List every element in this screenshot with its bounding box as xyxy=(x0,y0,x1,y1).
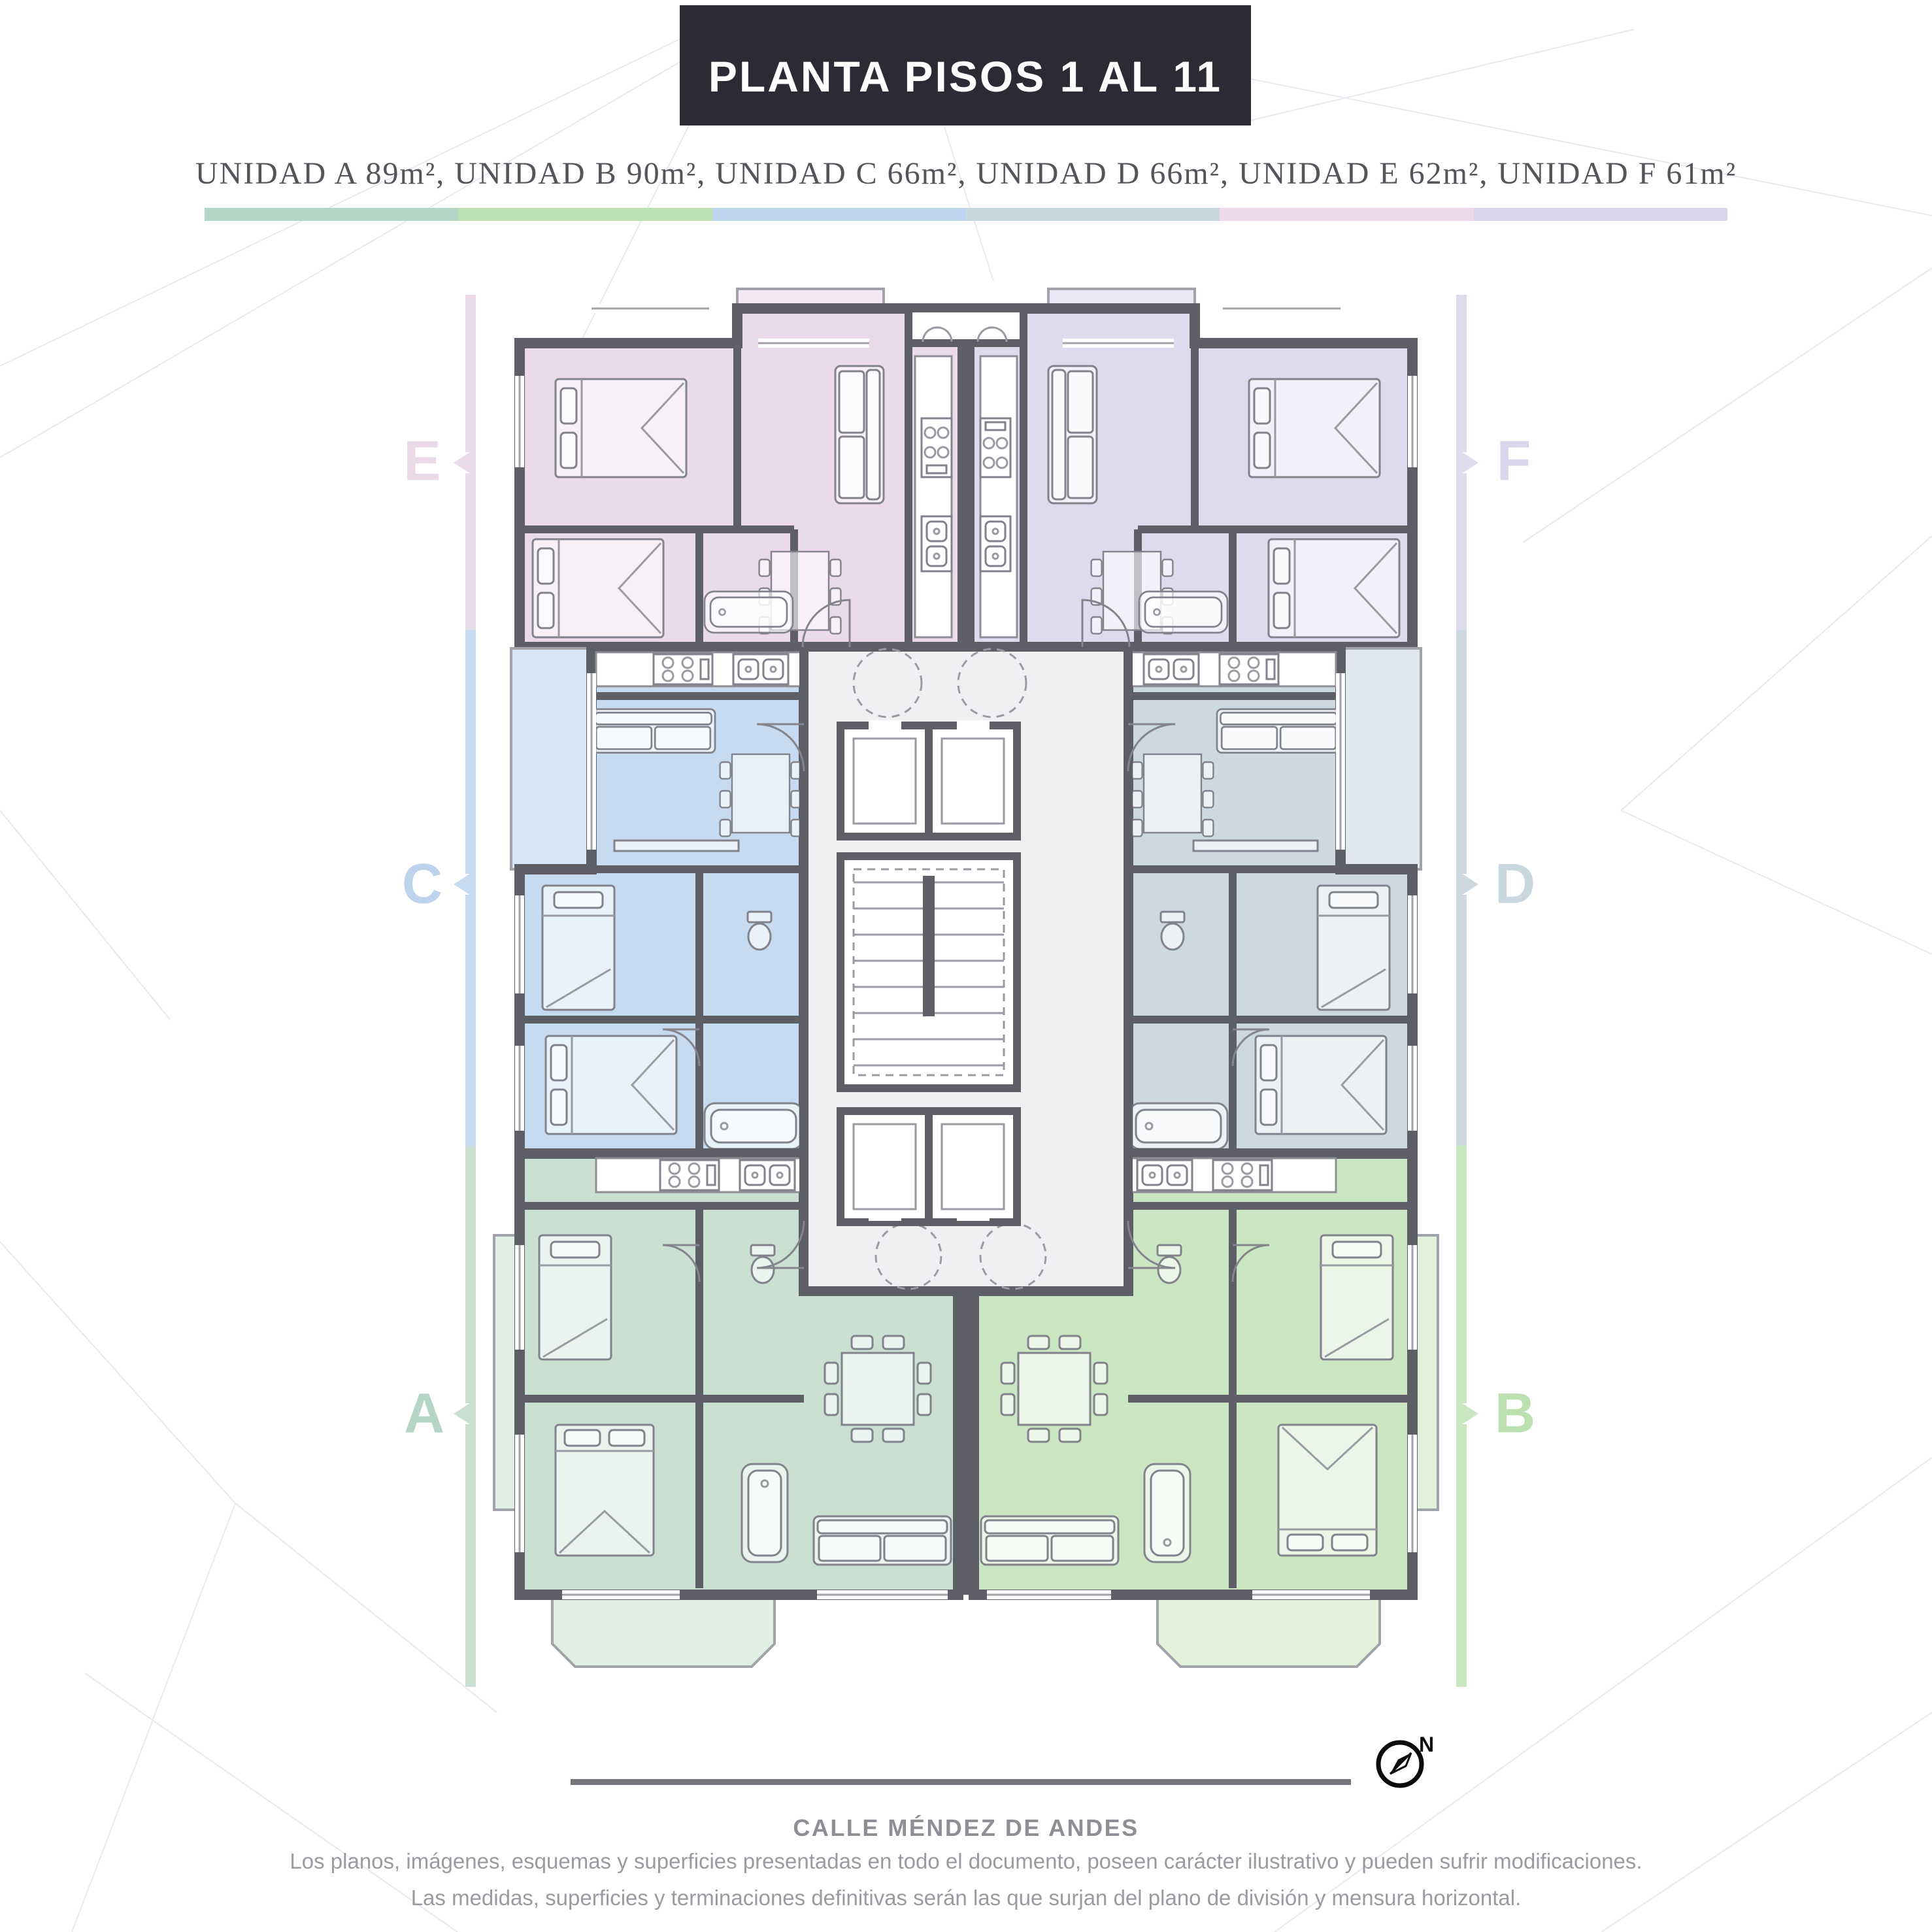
street-line xyxy=(571,1779,1351,1785)
party-wall xyxy=(958,1291,974,1595)
elevators-lower xyxy=(841,1111,1017,1222)
floor-plan-canvas: N xyxy=(0,0,1932,1932)
title-block: PLANTA PISOS 1 AL 11 xyxy=(680,5,1251,125)
unit-label-e: E xyxy=(403,429,441,494)
vent-shaft xyxy=(908,308,1024,343)
unit-label-d: D xyxy=(1495,852,1535,917)
legend-segment-c xyxy=(712,208,966,221)
legend-segment-d xyxy=(966,208,1220,221)
floor-plan xyxy=(494,289,1438,1667)
right-rail xyxy=(1452,295,1478,1687)
unit-e-region xyxy=(520,289,963,647)
units-subtitle: UNIDAD A 89m², UNIDAD B 90m², UNIDAD C 6… xyxy=(149,156,1783,192)
disclaimer: Los planos, imágenes, esquemas y superfi… xyxy=(182,1843,1750,1916)
unit-label-f: F xyxy=(1497,429,1531,494)
unit-f-region xyxy=(969,289,1412,647)
disclaimer-line-1: Los planos, imágenes, esquemas y superfi… xyxy=(182,1843,1750,1880)
disclaimer-line-2: Las medidas, superficies y terminaciones… xyxy=(182,1880,1750,1916)
unit-color-legend xyxy=(205,208,1727,221)
legend-segment-b xyxy=(458,208,712,221)
left-rail xyxy=(454,295,480,1687)
core-region xyxy=(804,647,1128,1291)
elevators-upper xyxy=(841,720,1017,837)
legend-segment-a xyxy=(205,208,458,221)
unit-c-region xyxy=(511,647,804,1154)
compass-north-label: N xyxy=(1419,1733,1434,1756)
legend-segment-e xyxy=(1220,208,1473,221)
page-title: PLANTA PISOS 1 AL 11 xyxy=(708,52,1222,101)
unit-label-a: A xyxy=(404,1382,444,1446)
unit-label-c: C xyxy=(402,852,442,917)
stairwell xyxy=(841,856,1017,1088)
legend-segment-f xyxy=(1474,208,1727,221)
unit-d-region xyxy=(1128,647,1421,1154)
unit-label-b: B xyxy=(1495,1382,1535,1446)
street-label: CALLE MÉNDEZ DE ANDES xyxy=(793,1814,1139,1842)
compass: N xyxy=(1378,1733,1434,1786)
party-wall xyxy=(959,308,973,647)
